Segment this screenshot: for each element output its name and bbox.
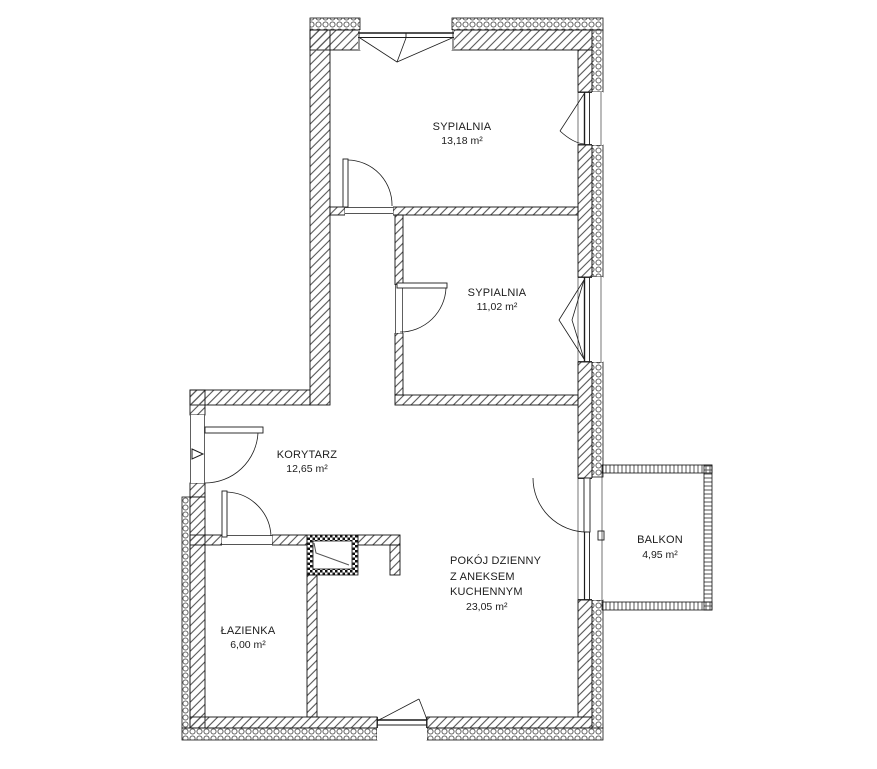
door-bathroom: [222, 491, 272, 546]
insulation-bottom-left: [182, 728, 377, 740]
wall-right-4: [578, 600, 592, 717]
insulation-top-right: [452, 18, 603, 30]
wall-right-3: [578, 362, 592, 478]
room-area-sypialnia-1: 13,18 m²: [441, 135, 483, 147]
floor-plan-drawing: SYPIALNIA 13,18 m² SYPIALNIA 11,02 m² KO…: [0, 0, 877, 769]
label-korytarz: KORYTARZ 12,65 m²: [277, 449, 338, 475]
wall-bed2-left-lower: [395, 333, 403, 395]
wall-bathroom-top-left: [190, 535, 222, 545]
wall-bottom-left: [190, 717, 377, 728]
door-entrance: [190, 415, 263, 483]
label-sypialnia-2: SYPIALNIA 11,02 m²: [468, 287, 527, 313]
balcony-door-handle: [598, 531, 604, 540]
wall-bathroom-right: [307, 575, 317, 717]
exterior-walls: [190, 30, 592, 728]
door-balcony: [533, 478, 604, 600]
label-lazienka: ŁAZIENKA 6,00 m²: [221, 625, 276, 651]
insulation-left: [182, 497, 190, 728]
shaft: [307, 535, 358, 575]
room-name-pokoj-line1: POKÓJ DZIENNY: [450, 554, 542, 567]
window-bedroom1-top: [358, 30, 454, 62]
wall-kitchen-stub-down: [390, 545, 400, 575]
insulation-right-4: [592, 600, 603, 728]
insulation-right-2: [592, 145, 603, 277]
railing-bottom: [602, 602, 712, 610]
label-sypialnia-1: SYPIALNIA 13,18 m²: [433, 121, 492, 147]
room-name-lazienka: ŁAZIENKA: [221, 625, 276, 637]
window-bedroom2-right: [559, 277, 603, 362]
insulation-bottom-right: [427, 728, 603, 740]
room-name-sypialnia-2: SYPIALNIA: [468, 287, 527, 299]
door-bedroom2: [394, 283, 447, 333]
label-balkon: BALKON 4,95 m²: [637, 534, 683, 561]
floor-plan-page: SYPIALNIA 13,18 m² SYPIALNIA 11,02 m² KO…: [0, 0, 877, 769]
wall-bed2-bottom: [395, 395, 578, 405]
room-area-balkon: 4,95 m²: [642, 549, 678, 561]
railing-top: [602, 465, 712, 473]
room-name-korytarz: KORYTARZ: [277, 449, 338, 461]
railing-right: [704, 465, 712, 610]
wall-bed1-bottom-left: [330, 207, 345, 215]
wall-left-entry-top: [190, 390, 205, 415]
wall-right-2: [578, 145, 592, 277]
wall-bed2-left-upper: [395, 215, 403, 285]
wall-kitchen-stub-top: [358, 535, 400, 545]
wall-left-upper: [310, 30, 330, 405]
door-bedroom1: [343, 159, 393, 216]
room-area-sypialnia-2: 11,02 m²: [477, 301, 518, 313]
room-labels: SYPIALNIA 13,18 m² SYPIALNIA 11,02 m² KO…: [221, 121, 683, 651]
wall-bottom-right: [427, 717, 592, 728]
wall-left-lower: [190, 497, 205, 728]
room-name-sypialnia-1: SYPIALNIA: [433, 121, 492, 133]
insulation-top-left: [310, 18, 360, 30]
wall-corridor-top: [190, 390, 310, 405]
room-name-balkon: BALKON: [637, 534, 683, 546]
window-bedroom1-right: [560, 92, 603, 145]
room-name-pokoj-line2: Z ANEKSEM: [450, 571, 515, 583]
room-area-pokoj: 23,05 m²: [466, 601, 508, 613]
insulation-right-1: [592, 30, 603, 92]
wall-right-1: [578, 50, 592, 92]
label-pokoj-dzienny: POKÓJ DZIENNY Z ANEKSEM KUCHENNYM 23,05 …: [450, 554, 542, 613]
room-area-lazienka: 6,00 m²: [230, 639, 266, 651]
wall-bathroom-top-right: [272, 535, 307, 545]
room-name-pokoj-line3: KUCHENNYM: [450, 586, 523, 598]
room-area-korytarz: 12,65 m²: [286, 463, 328, 475]
wall-top-right: [452, 30, 592, 50]
shaft-inner: [313, 541, 352, 569]
window-livingroom-bottom: [377, 699, 427, 740]
insulation-right-3: [592, 362, 603, 477]
wall-bed1-bottom-right: [393, 207, 578, 215]
wall-left-entry-bottom: [190, 483, 205, 497]
